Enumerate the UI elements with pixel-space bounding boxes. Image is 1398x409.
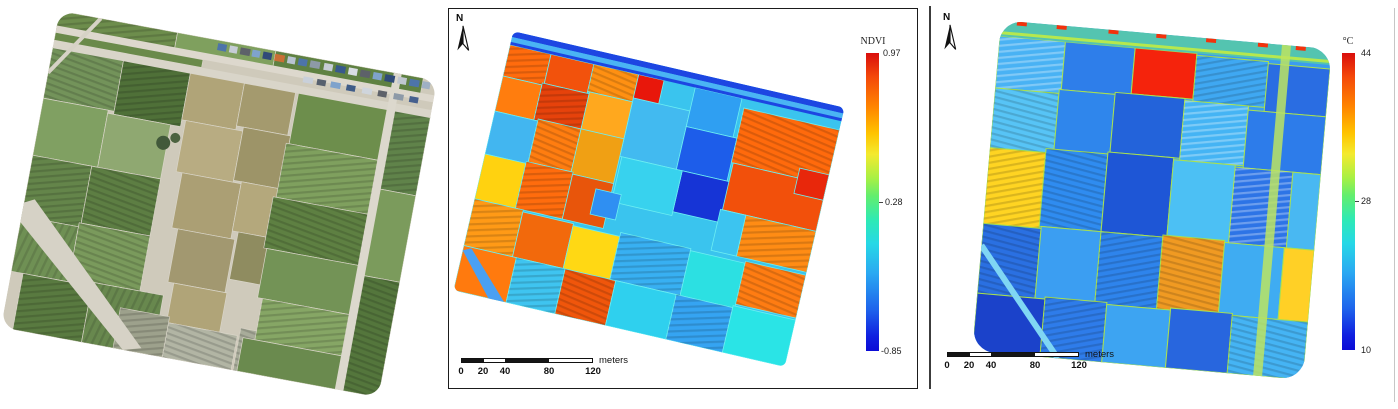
scale-tick-20: 20 xyxy=(478,366,489,377)
scale-tick-40: 40 xyxy=(500,366,511,377)
ndvi-colorbar-title: NDVI xyxy=(848,36,898,47)
ndvi-tick-mid: 0.28 xyxy=(885,197,903,207)
scale-bar-unit: meters xyxy=(1085,349,1114,360)
thermal-colorbar xyxy=(1342,53,1355,350)
north-label: N xyxy=(456,13,463,24)
north-arrow-icon xyxy=(940,23,960,55)
ndvi-tick-min: -0.85 xyxy=(881,346,902,356)
panel-rgb-orthomosaic xyxy=(0,0,444,409)
ndvi-raster xyxy=(453,31,844,367)
thermal-raster xyxy=(972,20,1332,380)
orthomosaic-photo xyxy=(1,11,437,398)
thermal-map-graphic xyxy=(930,0,1398,409)
scale-tick-0: 0 xyxy=(458,366,463,377)
scale-tick-80: 80 xyxy=(1030,360,1041,371)
ndvi-colorbar xyxy=(866,53,879,351)
scale-bar: meters 0 20 40 80 120 xyxy=(947,352,1157,376)
thermal-tick-min: 10 xyxy=(1361,345,1371,355)
north-arrow-icon xyxy=(453,24,473,56)
thermal-tick-max: 44 xyxy=(1361,48,1371,58)
ndvi-parcels xyxy=(453,45,841,367)
scale-tick-120: 120 xyxy=(585,366,601,377)
scale-tick-40: 40 xyxy=(986,360,997,371)
panel-divider-line xyxy=(929,6,931,389)
panel-right-border-line xyxy=(1394,8,1395,402)
scale-tick-20: 20 xyxy=(964,360,975,371)
ndvi-mid-tickmark xyxy=(879,202,883,203)
panel-thermal-map: N °C 44 28 10 meters 0 20 40 80 120 xyxy=(930,0,1398,409)
scale-bar-graphic xyxy=(947,352,1079,357)
thermal-colorbar-title: °C xyxy=(1328,36,1368,47)
panel-ndvi-map: N NDVI 0.97 0.28 -0.85 meters 0 20 40 80… xyxy=(448,8,918,389)
rgb-orthomosaic-graphic xyxy=(0,0,444,409)
thermal-mid-tickmark xyxy=(1355,201,1359,202)
thermal-tick-mid: 28 xyxy=(1361,196,1371,206)
ndvi-map-graphic xyxy=(449,9,917,388)
scale-tick-0: 0 xyxy=(944,360,949,371)
scale-bar-graphic xyxy=(461,358,593,363)
scale-bar-unit: meters xyxy=(599,355,628,366)
scale-tick-120: 120 xyxy=(1071,360,1087,371)
ndvi-tick-max: 0.97 xyxy=(883,48,901,58)
scale-tick-80: 80 xyxy=(544,366,555,377)
figure-canvas: N NDVI 0.97 0.28 -0.85 meters 0 20 40 80… xyxy=(0,0,1398,409)
north-label: N xyxy=(943,12,950,23)
scale-bar: meters 0 20 40 80 120 xyxy=(461,358,671,382)
